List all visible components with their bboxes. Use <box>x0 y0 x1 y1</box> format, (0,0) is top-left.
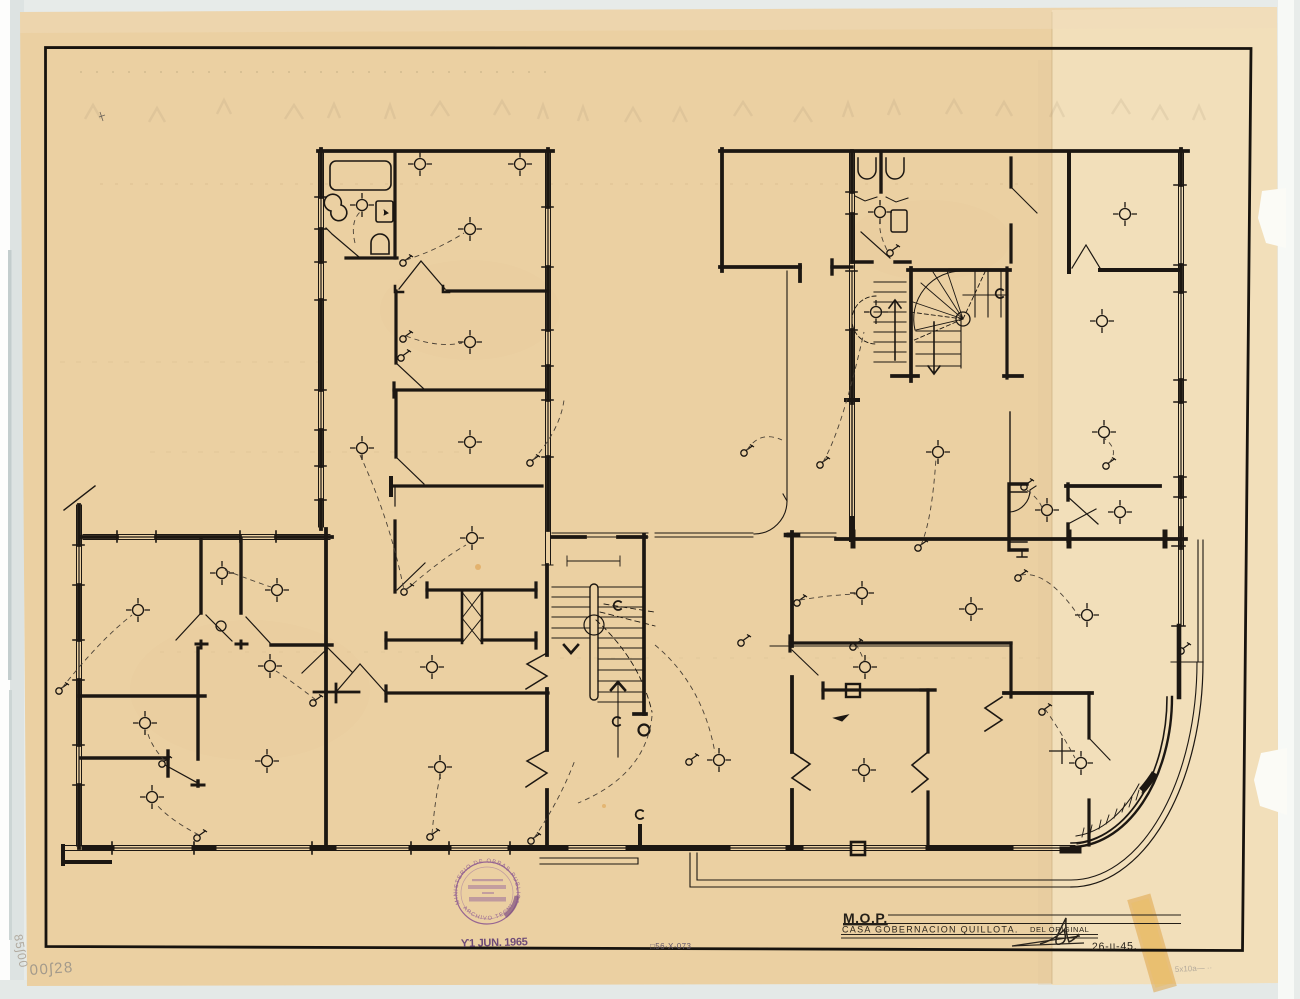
svg-text:CASA GOBERNACION QUILLOTA.: CASA GOBERNACION QUILLOTA. <box>842 925 1019 935</box>
svg-text:00ʃ28: 00ʃ28 <box>29 959 74 979</box>
svg-text:ϒ1 JUN. 1965: ϒ1 JUN. 1965 <box>461 936 528 950</box>
svg-text:26-II-45.: 26-II-45. <box>1092 940 1138 953</box>
svg-text:□56·X·073: □56·X·073 <box>650 942 691 951</box>
